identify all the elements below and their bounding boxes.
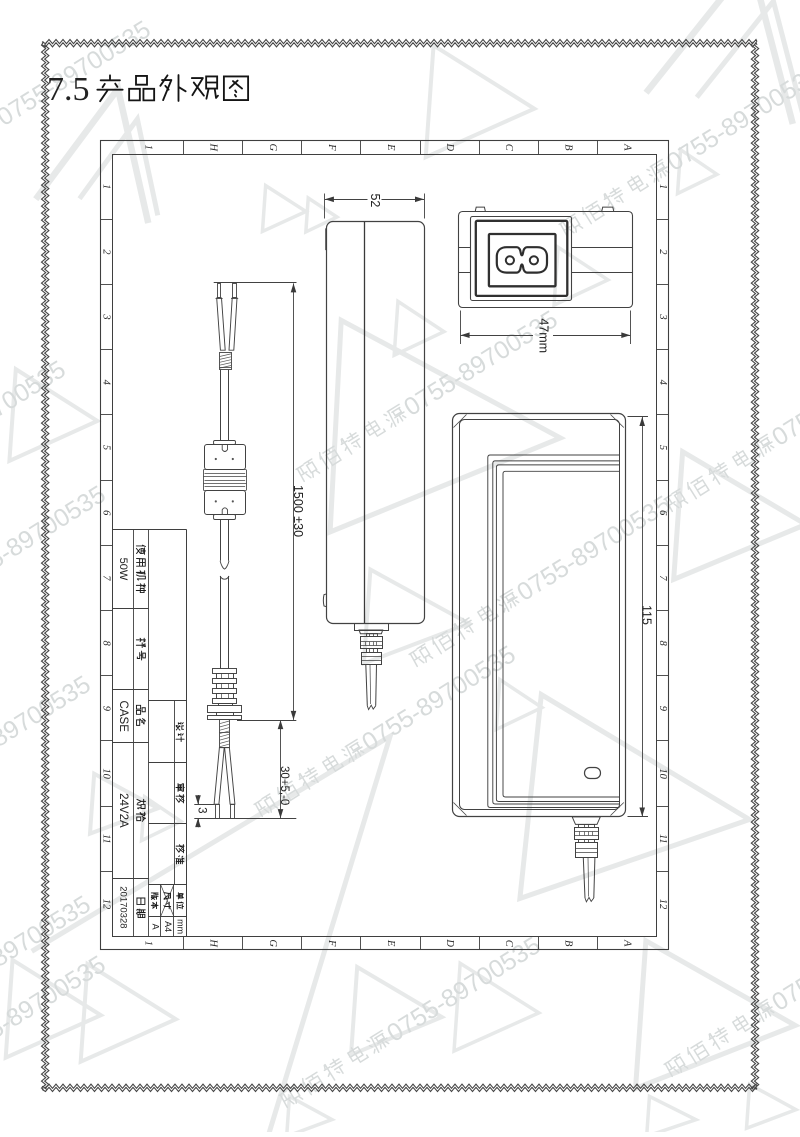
svg-text:A4: A4 xyxy=(163,921,173,932)
svg-text:A: A xyxy=(621,939,632,947)
svg-text:D: D xyxy=(444,938,455,947)
svg-text:4: 4 xyxy=(657,380,668,386)
svg-text:5: 5 xyxy=(101,445,112,450)
svg-text:2: 2 xyxy=(101,249,112,255)
svg-text:10: 10 xyxy=(101,768,112,779)
svg-text:2: 2 xyxy=(657,249,668,255)
svg-text:1: 1 xyxy=(101,184,112,189)
svg-text:F: F xyxy=(326,939,337,947)
svg-text:3: 3 xyxy=(657,313,668,319)
svg-text:C: C xyxy=(503,940,514,948)
svg-text:CASE: CASE xyxy=(117,701,129,733)
svg-text:8: 8 xyxy=(101,641,112,647)
svg-text:1: 1 xyxy=(143,145,154,150)
svg-text:11: 11 xyxy=(657,834,668,844)
svg-text:47mm: 47mm xyxy=(537,318,551,353)
svg-text:12: 12 xyxy=(101,899,112,910)
svg-text:11: 11 xyxy=(101,834,112,844)
svg-text:115: 115 xyxy=(640,605,654,625)
svg-text:7.5: 7.5 xyxy=(47,71,90,108)
svg-text:12: 12 xyxy=(657,899,668,910)
svg-text:9: 9 xyxy=(657,706,668,712)
svg-text:F: F xyxy=(326,143,337,151)
svg-text:G: G xyxy=(267,144,278,152)
svg-text:C: C xyxy=(503,144,514,152)
svg-text:1500 ±30: 1500 ±30 xyxy=(291,485,305,537)
svg-text:10: 10 xyxy=(657,768,668,779)
svg-text:B: B xyxy=(562,144,573,151)
svg-text:H: H xyxy=(208,938,219,948)
svg-text:E: E xyxy=(385,143,396,151)
svg-text:1: 1 xyxy=(657,184,668,189)
svg-text:52: 52 xyxy=(368,193,382,207)
svg-text:D: D xyxy=(444,143,455,152)
svg-text:G: G xyxy=(267,939,278,947)
svg-text:5: 5 xyxy=(657,445,668,450)
svg-text:H: H xyxy=(208,143,219,153)
svg-text:B: B xyxy=(562,940,573,947)
svg-text:A: A xyxy=(150,924,160,930)
svg-text:3: 3 xyxy=(101,313,112,319)
svg-text:30+5,-0: 30+5,-0 xyxy=(278,766,290,805)
svg-text:E: E xyxy=(385,939,396,947)
svg-text:50W: 50W xyxy=(117,558,129,581)
svg-text:6: 6 xyxy=(657,510,668,516)
svg-text:4: 4 xyxy=(101,380,112,386)
svg-text:mm: mm xyxy=(176,919,186,934)
svg-text:8: 8 xyxy=(657,641,668,647)
svg-text:9: 9 xyxy=(101,706,112,712)
svg-text:A: A xyxy=(621,143,632,151)
svg-text:6: 6 xyxy=(101,510,112,516)
svg-text:7: 7 xyxy=(657,575,668,581)
svg-text:24V2A: 24V2A xyxy=(117,793,129,828)
svg-text:1: 1 xyxy=(143,941,154,946)
svg-text:7: 7 xyxy=(101,575,112,581)
svg-text:20170328: 20170328 xyxy=(117,886,128,928)
svg-text:3: 3 xyxy=(196,807,208,813)
